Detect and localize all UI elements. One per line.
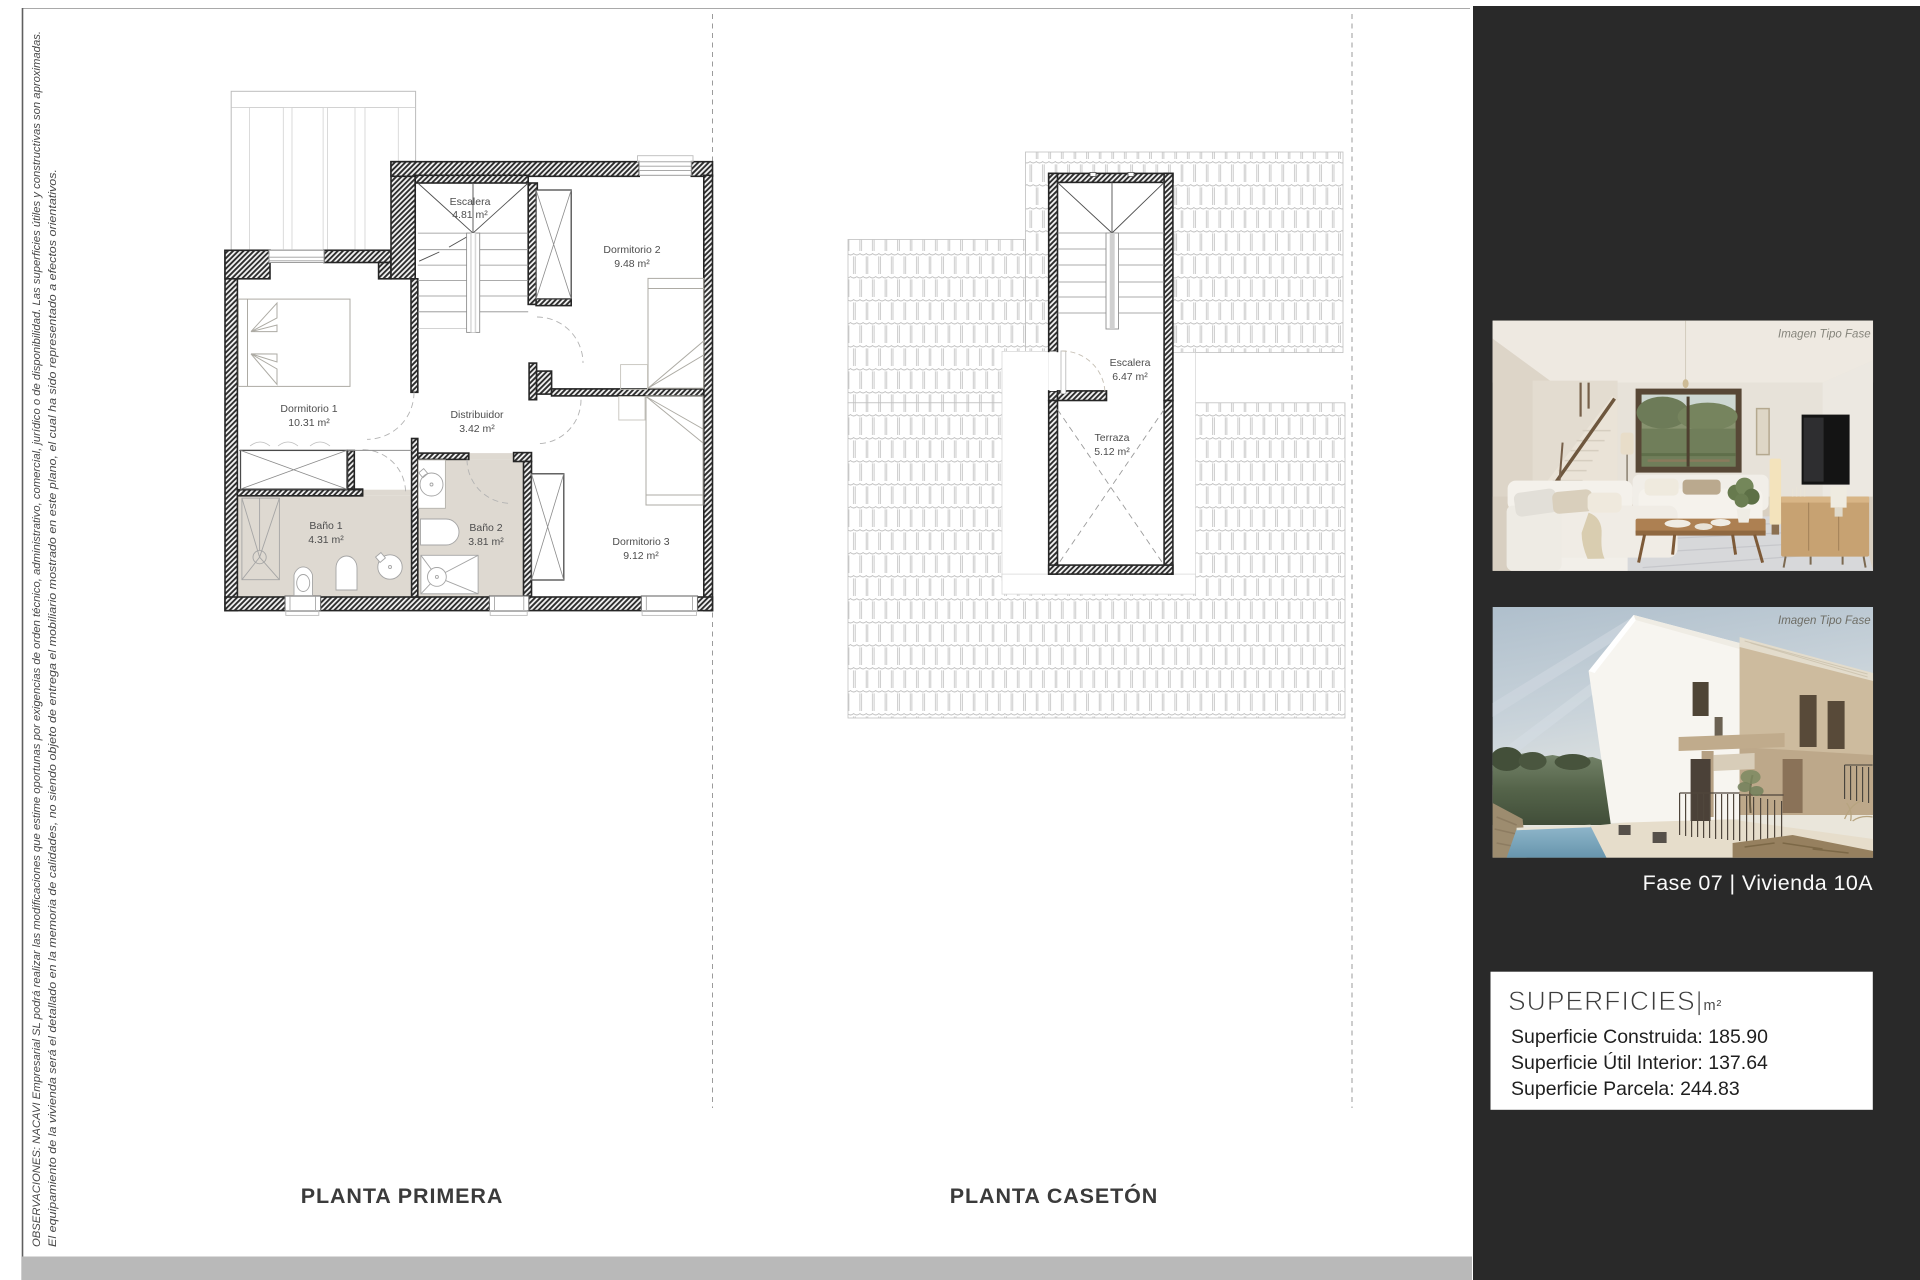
svg-text:Dormitorio 2: Dormitorio 2 [603,244,660,256]
svg-text:Superficie Parcela: 244.83: Superficie Parcela: 244.83 [1511,1078,1740,1100]
svg-text:Terraza: Terraza [1094,432,1129,444]
svg-text:Escalera: Escalera [1110,357,1151,369]
svg-text:Imagen Tipo Fase: Imagen Tipo Fase [1778,329,1871,341]
svg-text:5.12 m²: 5.12 m² [1094,446,1130,458]
svg-text:3.42 m²: 3.42 m² [459,423,495,435]
svg-text:PLANTA PRIMERA: PLANTA PRIMERA [301,1184,504,1208]
svg-text:10.31 m²: 10.31 m² [288,417,330,429]
svg-text:El equipamiento de la vivienda: El equipamiento de la vivienda será el d… [47,169,59,1247]
svg-text:Imagen Tipo Fase: Imagen Tipo Fase [1778,615,1871,627]
svg-text:Superficie Útil Interior: 137.: Superficie Útil Interior: 137.64 [1511,1051,1768,1074]
svg-text:Escalera: Escalera [450,196,491,208]
svg-text:OBSERVACIONES: NACAVI Empresar: OBSERVACIONES: NACAVI Empresarial SL pod… [31,31,43,1247]
svg-text:4.81 m²: 4.81 m² [452,209,488,221]
svg-text:PLANTA CASETÓN: PLANTA CASETÓN [950,1183,1158,1208]
svg-text:Baño 2: Baño 2 [469,522,502,534]
svg-text:Fase 07 | Vivienda 10A: Fase 07 | Vivienda 10A [1643,871,1874,895]
svg-text:6.47 m²: 6.47 m² [1112,371,1148,383]
svg-text:SUPERFICIES|m²: SUPERFICIES|m² [1508,986,1722,1016]
svg-text:Dormitorio 3: Dormitorio 3 [612,536,669,548]
svg-text:Baño 1: Baño 1 [309,520,342,532]
svg-text:Dormitorio 1: Dormitorio 1 [280,403,337,415]
svg-text:9.12 m²: 9.12 m² [623,550,659,562]
svg-text:Superficie Construida: 185.90: Superficie Construida: 185.90 [1511,1026,1768,1048]
svg-text:Distribuidor: Distribuidor [450,409,504,421]
svg-text:3.81 m²: 3.81 m² [468,536,504,548]
svg-text:9.48 m²: 9.48 m² [614,258,650,270]
svg-text:4.31 m²: 4.31 m² [308,534,344,546]
